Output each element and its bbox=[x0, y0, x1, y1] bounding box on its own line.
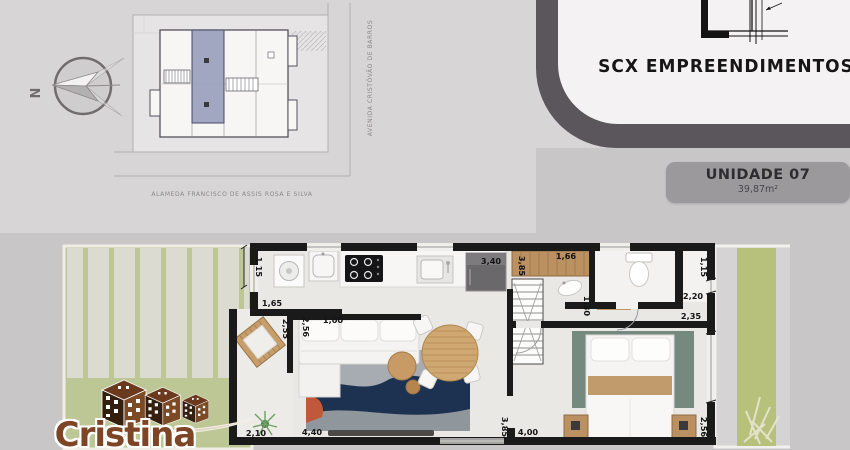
nightstand bbox=[564, 415, 588, 438]
nightstand bbox=[672, 415, 696, 438]
dim-label: 2,56 bbox=[301, 317, 311, 338]
watermark-name: Cristina Resende bbox=[0, 415, 260, 450]
laundry-tank bbox=[309, 251, 338, 281]
dim-label: 3,85 bbox=[517, 256, 527, 277]
floor-plan-poster: SCX EMPREENDIMENTOS UNIDADE 07 39,87m² N bbox=[0, 0, 850, 450]
dim-label: 1,65 bbox=[262, 298, 283, 308]
dim-label: 4,00 bbox=[518, 427, 539, 437]
site-building bbox=[150, 30, 297, 137]
dim-label: 1,30 bbox=[582, 296, 592, 317]
dim-label: 4,40 bbox=[302, 427, 323, 437]
site-plan: ALAMEDA FRANCISCO DE ASSIS ROSA E SILVA … bbox=[114, 3, 404, 213]
tv-console bbox=[328, 430, 434, 436]
unit-title: UNIDADE 07 bbox=[666, 167, 850, 183]
dim-label: 2,35 bbox=[681, 311, 702, 321]
unit-badge: UNIDADE 07 39,87m² bbox=[666, 162, 850, 203]
dim-label: 2,55 bbox=[281, 319, 291, 340]
dining-table bbox=[422, 325, 478, 381]
cooktop bbox=[345, 255, 383, 282]
dim-label: 1,66 bbox=[556, 251, 577, 261]
dim-label: 1,00 bbox=[323, 315, 344, 325]
bed bbox=[586, 335, 674, 441]
living-room bbox=[299, 314, 484, 436]
dim-label: 1,15 bbox=[699, 257, 709, 278]
dim-label: 2,20 bbox=[683, 291, 704, 301]
street-label-bottom: ALAMEDA FRANCISCO DE ASSIS ROSA E SILVA bbox=[151, 191, 313, 198]
bedroom bbox=[564, 331, 696, 441]
north-label: N bbox=[29, 88, 44, 99]
kitchen-sink bbox=[417, 256, 453, 283]
unit-area: 39,87m² bbox=[666, 184, 850, 195]
blueprint-corner-icon bbox=[640, 0, 850, 50]
washing-machine bbox=[274, 255, 304, 287]
street-label-right: AVENIDA CRISTÓVÃO DE BARROS bbox=[367, 20, 374, 137]
dim-label: 2,56 bbox=[699, 417, 709, 438]
brand-name: SCX EMPREENDIMENTOS bbox=[597, 57, 850, 78]
dim-label: 3,40 bbox=[481, 256, 502, 266]
highlighted-unit bbox=[192, 30, 224, 123]
dim-label: 3,85 bbox=[500, 417, 510, 438]
dim-label: 1,15 bbox=[254, 257, 264, 278]
right-garden bbox=[715, 246, 790, 447]
